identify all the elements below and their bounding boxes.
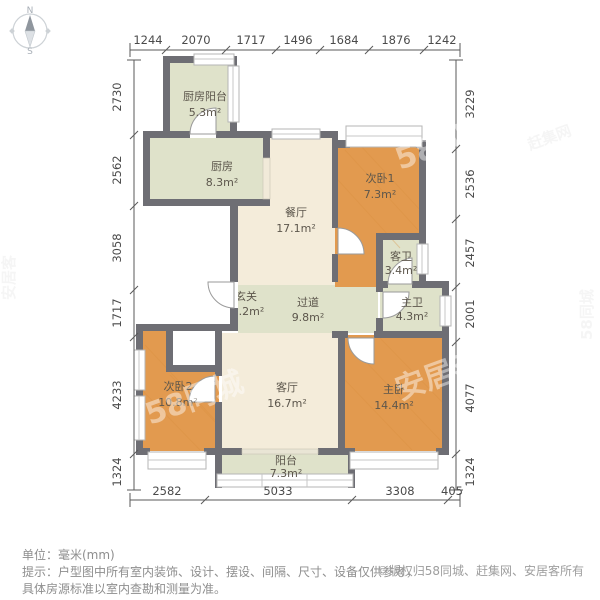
guest-bath-area: 3.4m² [385,264,418,277]
dim-right-3: 2001 [463,299,477,328]
bedroom1-label: 次卧1 [366,171,395,185]
dim-left-3: 1717 [110,298,124,327]
kitchen-floor [147,135,267,202]
kitchen-balcony-area: 5.3m² [189,106,222,119]
compass-south: S [27,47,33,57]
balcony-label: 阳台 [275,453,297,467]
dim-right-4: 4077 [463,383,477,412]
dim-top-5: 1876 [381,33,410,47]
dim-bottom-0: 2582 [152,484,181,498]
dim-top-2: 1717 [236,33,265,47]
dimensions-top: 1244 2070 1717 1496 1684 1876 1242 [130,33,460,57]
watermark-edge-3: 赶集网 [524,121,573,154]
dim-bottom-1: 5033 [263,484,292,498]
dim-top-4: 1684 [329,33,358,47]
copyright-note: ©版权归58同城、赶集网、安居客所有 [377,562,584,579]
watermark-edge-2: 58同城 [578,289,596,340]
balcony-area: 7.3m² [270,467,303,480]
dining-label: 餐厅 [285,205,307,219]
watermark-inner-1: 58同城 [391,110,499,178]
dim-bottom-2: 3308 [385,484,414,498]
kitchen-label: 厨房 [211,160,233,173]
dim-top-6: 1242 [427,33,456,47]
hallway-label: 过道 [297,295,319,309]
dim-left-1: 2562 [110,155,124,184]
master-bath-area: 4.3m² [396,310,429,323]
dim-right-5: 1324 [463,457,477,486]
dim-top-3: 1496 [283,33,312,47]
disclaimer-line1: 提示：户型图中所有室内装饰、设计、摆设、间隔、尺寸、设备仅供参考， [22,564,418,581]
disclaimer-line2: 具体房源标准以室内查勘和测量为准。 [22,581,418,598]
dim-top-0: 1244 [133,33,162,47]
dim-left-2: 3058 [110,233,124,262]
bedroom1-area: 7.3m² [364,188,397,201]
dim-left-0: 2730 [110,82,124,111]
watermark-edge-1: 安居客 [0,254,18,300]
dim-left-4: 4233 [110,380,124,409]
kitchen-balcony-label: 厨房阳台 [183,89,227,103]
floorplan-drawing: 玄关 2.2m² [0,0,600,600]
living-area: 16.7m² [267,397,307,410]
unit-note: 单位：毫米(mm) [22,547,418,564]
dim-right-2: 2457 [463,238,477,267]
dim-left-5: 1324 [110,457,124,486]
footer-notes: 单位：毫米(mm) 提示：户型图中所有室内装饰、设计、摆设、间隔、尺寸、设备仅供… [22,547,418,598]
guest-bath-label: 客卫 [390,249,412,263]
dim-top-1: 2070 [181,33,210,47]
entry-label: 玄关 [235,289,257,303]
entry-door [208,282,234,308]
dim-bottom-3: 405 [441,484,463,498]
master-bath-label: 主卫 [401,296,423,309]
floorplan-page: 玄关 2.2m² [0,0,600,600]
dim-right-1: 2536 [463,169,477,198]
dining-area: 17.1m² [276,222,316,235]
hallway-area: 9.8m² [292,311,325,324]
compass-icon: N S [9,6,51,57]
compass-north: N [27,6,34,16]
living-label: 客厅 [276,380,298,394]
kitchen-area: 8.3m² [206,176,239,189]
